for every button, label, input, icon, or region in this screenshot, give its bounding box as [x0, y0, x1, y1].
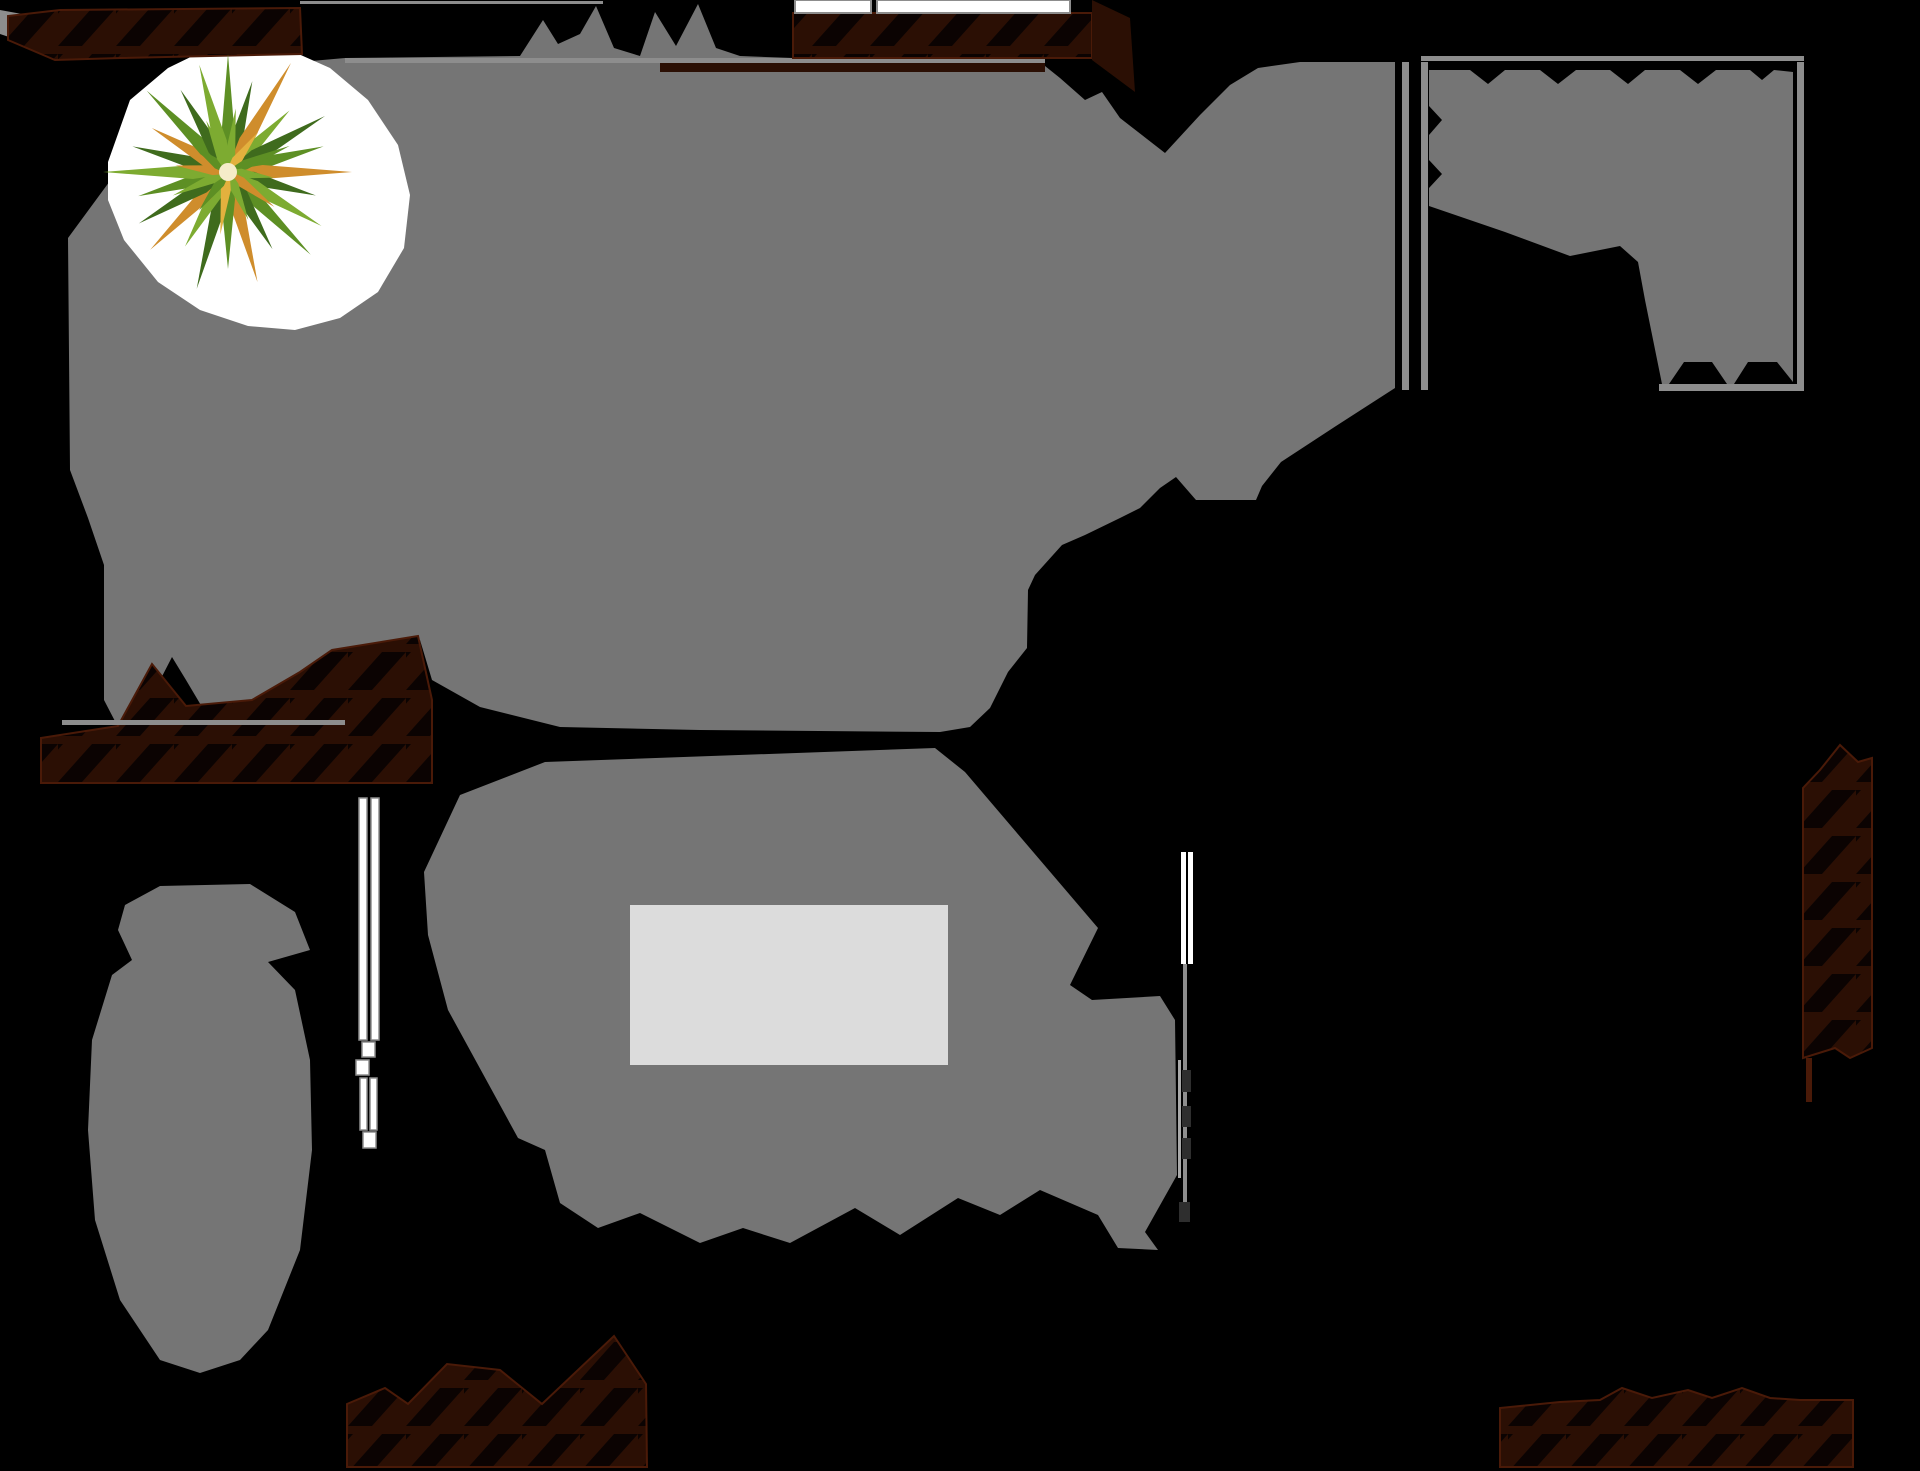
- table-highlight: [630, 905, 948, 1065]
- room-right-wall-line: [1797, 62, 1804, 390]
- window-left-bar-b: [371, 798, 379, 1040]
- window-left-cap-b: [356, 1060, 369, 1075]
- wall-brick-bottom-right: [1500, 1388, 1853, 1467]
- plant-center: [219, 163, 237, 181]
- shadow-armchairs: [88, 884, 312, 1373]
- wall-right-thin-line: [1178, 1060, 1181, 1178]
- wall-wedge-top-right: [1092, 0, 1135, 92]
- shadow-top-right-room: [1429, 70, 1793, 384]
- wall-brick-right-column: [1803, 745, 1872, 1058]
- wall-brick-top-center: [793, 13, 1092, 58]
- window-right-bar-a: [1181, 852, 1186, 964]
- window-left-cap-c: [363, 1132, 376, 1148]
- floorplan-stage: [0, 0, 1920, 1471]
- window-top-pane-right: [877, 0, 1070, 13]
- floorplan-canvas: [0, 0, 1920, 1471]
- wall-right-mark-c: [1182, 1138, 1191, 1159]
- wall-right-endcap: [1179, 1202, 1190, 1222]
- room-bottom-wall-line: [1659, 384, 1804, 391]
- window-top-pane-left: [795, 0, 871, 13]
- wall-brick-top-left: [8, 8, 302, 60]
- window-left-bar-d: [370, 1078, 377, 1130]
- room-top-wall-line: [1421, 56, 1804, 61]
- room-divider-wall-line: [1402, 62, 1409, 390]
- wall-brick-bottom-left: [347, 1336, 647, 1467]
- wall-right-mark-b: [1182, 1106, 1191, 1127]
- room-left-wall-line: [1421, 62, 1428, 390]
- wall-under-strip: [660, 63, 1045, 72]
- window-right-bar-b: [1188, 852, 1193, 964]
- wall-right-column-tail: [1806, 1058, 1812, 1102]
- window-left-bar-c: [360, 1078, 367, 1130]
- window-left-cap-a: [362, 1042, 375, 1057]
- window-left-bar-a: [359, 798, 367, 1040]
- wall-right-mark-a: [1182, 1070, 1191, 1092]
- top-sill-line: [300, 1, 603, 4]
- left-wall-inner-line: [62, 720, 345, 725]
